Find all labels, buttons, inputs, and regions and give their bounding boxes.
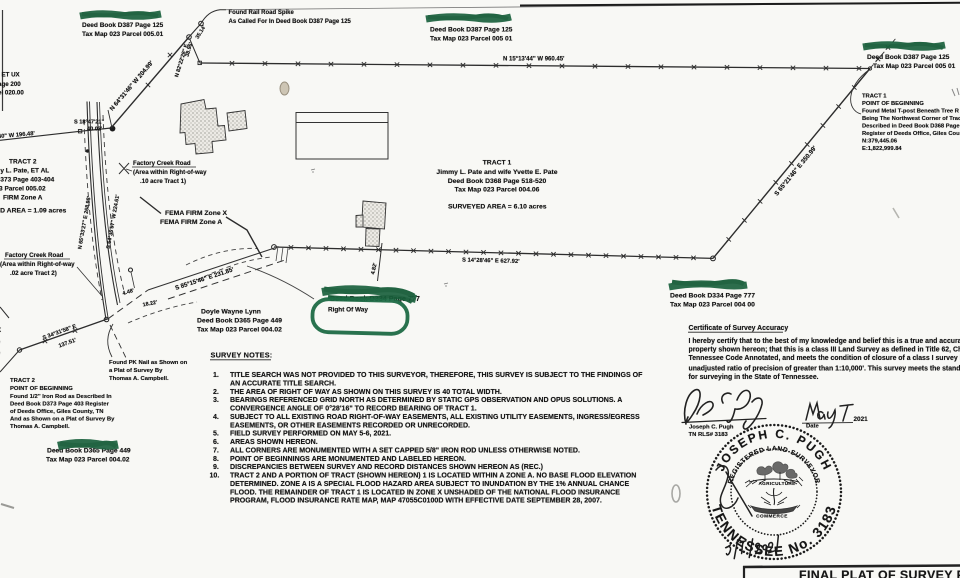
svg-text:N 15°13'44" W 960.45': N 15°13'44" W 960.45' [503, 57, 565, 63]
svg-text:Found Metal T-post Beneath Tre: Found Metal T-post Beneath Tree R [862, 109, 960, 115]
svg-text:2021: 2021 [854, 416, 869, 423]
svg-text:Tax Map 023 Parcel 004.02: Tax Map 023 Parcel 004.02 [197, 327, 282, 334]
svg-text:VEYED AREA = 1.09 acres: VEYED AREA = 1.09 acres [0, 208, 67, 215]
svg-text:7.: 7. [213, 447, 219, 454]
svg-text:40.03': 40.03' [87, 127, 103, 133]
svg-text:AREAS SHOWN HEREON.: AREAS SHOWN HEREON. [230, 439, 318, 446]
svg-text:BEARINGS REFERENCED GRID NORTH: BEARINGS REFERENCED GRID NORTH AS DETERM… [230, 397, 622, 404]
svg-text:(Area within Right-of-way: (Area within Right-of-way [133, 169, 207, 176]
svg-text:N:379,445.06: N:379,445.06 [862, 139, 898, 145]
svg-text:8.: 8. [213, 456, 219, 463]
svg-text:Tax Map 023 Parcel 005 01: Tax Map 023 Parcel 005 01 [430, 36, 513, 43]
svg-text:Certificate of Survey Accuracy: Certificate of Survey Accuracy [689, 325, 789, 332]
svg-text:property shown hereon; that th: property shown hereon; that this is a cl… [689, 347, 960, 354]
svg-text:Tax Map 023 Parcel 004 00: Tax Map 023 Parcel 004 00 [670, 302, 755, 309]
svg-text:Register of Deeds Office, Gile: Register of Deeds Office, Giles Cou [862, 131, 960, 137]
svg-text:AGRICULTURE: AGRICULTURE [758, 481, 795, 486]
svg-text:4.: 4. [213, 414, 219, 421]
svg-text:Jimmy L. Pate and wife Yvette: Jimmy L. Pate and wife Yvette E. Pate [436, 169, 557, 176]
svg-text:Deed Book D368 Page 518-520: Deed Book D368 Page 518-520 [448, 178, 547, 185]
svg-text:3.: 3. [213, 397, 219, 404]
svg-text:TRACT 2: TRACT 2 [9, 159, 37, 166]
svg-text:FINAL PLAT OF SURVEY FOR: FINAL PLAT OF SURVEY FOR [799, 568, 960, 578]
svg-text:TRACT 2 AND A PORTION OF TRACT: TRACT 2 AND A PORTION OF TRACT (SHOWN HE… [230, 473, 636, 480]
svg-text:1.: 1. [213, 372, 219, 379]
svg-text:FEMA FIRM Zone X: FEMA FIRM Zone X [165, 210, 228, 217]
svg-text:PROGRAM, FLOOD INSURANCE RATE: PROGRAM, FLOOD INSURANCE RATE MAP, MAP 4… [230, 498, 602, 505]
svg-text:I hereby certify that to the b: I hereby certify that to the best of my … [689, 338, 960, 345]
svg-text:Joseph C. Pugh: Joseph C. Pugh [689, 425, 734, 431]
svg-text:Factory Creek Road: Factory Creek Road [133, 160, 191, 167]
svg-text:Described in Deed Book D368 Pa: Described in Deed Book D368 Page [862, 124, 960, 130]
svg-text:Found PK Nail as Shown on: Found PK Nail as Shown on [109, 360, 188, 366]
svg-text:Right Of Way: Right Of Way [328, 307, 368, 314]
svg-text:As Called For In Deed Book D38: As Called For In Deed Book D387 Page 125 [229, 19, 352, 25]
svg-text:Map 023 Parcel 005.02: Map 023 Parcel 005.02 [0, 186, 46, 193]
svg-text:immy L. Pate, ET AL: immy L. Pate, ET AL [0, 168, 49, 175]
svg-text:Tax Map 023 Parcel 004.06: Tax Map 023 Parcel 004.06 [455, 187, 540, 194]
svg-text:SURVEY NOTES:: SURVEY NOTES: [211, 351, 273, 360]
svg-text:EASEMENTS, OR OTHER EASEMENTS: EASEMENTS, OR OTHER EASEMENTS RECORDED O… [230, 422, 470, 429]
svg-text:FEMA FIRM Zone A: FEMA FIRM Zone A [160, 219, 222, 226]
svg-text:TRACT 1: TRACT 1 [862, 94, 887, 100]
svg-text:SURVEYED AREA = 6.10 acres: SURVEYED AREA = 6.10 acres [448, 204, 547, 211]
svg-text:Book D3373 Page 403-404: Book D3373 Page 403-404 [0, 177, 55, 184]
svg-text:FIELD SURVEY PERFORMED ON MAY: FIELD SURVEY PERFORMED ON MAY 5-6, 2021. [230, 431, 391, 438]
svg-text:9.: 9. [213, 464, 219, 471]
svg-text:.10 acre Tract 1): .10 acre Tract 1) [140, 178, 186, 185]
svg-text:Deed Book D334 Page 777: Deed Book D334 Page 777 [670, 293, 755, 300]
svg-text:POINT OF BEGINNING: POINT OF BEGINNING [862, 101, 924, 107]
svg-text:Thomas A. Campbell.: Thomas A. Campbell. [109, 376, 169, 382]
svg-text:DISCREPANCIES BETWEEN SURVEY A: DISCREPANCIES BETWEEN SURVEY AND RECORD … [230, 464, 543, 471]
svg-text:Date: Date [806, 424, 819, 430]
svg-text:AN ACCURATE TITLE SEARCH.: AN ACCURATE TITLE SEARCH. [230, 380, 336, 387]
svg-text:Deed Book D387 Page 125: Deed Book D387 Page 125 [430, 27, 513, 34]
svg-text:S 18°47'21": S 18°47'21" [74, 120, 105, 126]
svg-text:FLOOD. THE REMAINDER OF TRACT: FLOOD. THE REMAINDER OF TRACT 1 IS LOCAT… [230, 489, 620, 496]
svg-text:TRACT 2: TRACT 2 [10, 378, 36, 384]
svg-text:a Plat of Survey By: a Plat of Survey By [109, 368, 163, 374]
svg-text:Deed Book D373 Page 403 Regist: Deed Book D373 Page 403 Register [10, 402, 110, 408]
svg-text:POINT OF BEGINNING: POINT OF BEGINNING [10, 386, 73, 392]
svg-text:Found 1/2" Iron Rod as Describ: Found 1/2" Iron Rod as Described In [10, 394, 112, 400]
svg-text:.02 acre Tract 2): .02 acre Tract 2) [10, 270, 57, 277]
svg-text:CONVERGENCE ANGLE OF 0°28'16": CONVERGENCE ANGLE OF 0°28'16" TO RECORD … [230, 405, 477, 413]
svg-text:unadjusted ratio of precision: unadjusted ratio of precision of greater… [689, 366, 960, 373]
svg-text:TRACT 1: TRACT 1 [483, 160, 512, 167]
svg-text:Tax Map 023 Parcel 005.01: Tax Map 023 Parcel 005.01 [82, 31, 164, 38]
svg-text:Tax Map 023 Parcel 005 01: Tax Map 023 Parcel 005 01 [873, 63, 956, 70]
svg-text:el 020.00: el 020.00 [0, 90, 24, 97]
svg-text:X: X [0, 328, 1, 334]
svg-text:And as Shown on a Plat of Surv: And as Shown on a Plat of Survey By [10, 417, 115, 423]
svg-text:ALL CORNERS ARE MONUMENTED WIT: ALL CORNERS ARE MONUMENTED WITH A SET CA… [230, 447, 580, 454]
svg-text:10.: 10. [210, 473, 220, 480]
svg-text:Deed Book D387 Page 125: Deed Book D387 Page 125 [867, 54, 950, 61]
svg-text:Deed Book D387 Page 125: Deed Book D387 Page 125 [82, 22, 164, 29]
svg-text:for surveying in the State of: for surveying in the State of Tennessee. [689, 374, 819, 381]
svg-text:FIRM Zone A: FIRM Zone A [3, 195, 43, 202]
svg-text:age 200: age 200 [0, 81, 21, 88]
svg-text:DETERMINED. ZONE A IS A SPECIA: DETERMINED. ZONE A IS A SPECIAL FLOOD HA… [230, 481, 630, 488]
svg-text:SUBJECT TO ALL EXISTING ROAD R: SUBJECT TO ALL EXISTING ROAD RIGHT-OF-WA… [230, 414, 640, 421]
svg-text:Being The Northwest Corner of: Being The Northwest Corner of Trac [862, 116, 960, 122]
svg-text:Thomas A. Campbell.: Thomas A. Campbell. [10, 424, 70, 430]
svg-text:COMMERCE: COMMERCE [756, 514, 788, 519]
svg-text:of Deeds Office, Giles County,: of Deeds Office, Giles County, TN [10, 409, 104, 415]
svg-text:Doyle Wayne Lynn: Doyle Wayne Lynn [201, 309, 261, 316]
svg-text:(Area within Right-of-way: (Area within Right-of-way [0, 261, 75, 268]
svg-text:TN RLS# 3183: TN RLS# 3183 [689, 432, 729, 438]
svg-text:TITLE SEARCH WAS NOT PROVIDED: TITLE SEARCH WAS NOT PROVIDED TO THIS SU… [230, 372, 643, 379]
svg-text:Factory Creek Road: Factory Creek Road [5, 252, 64, 259]
svg-text:6.: 6. [213, 439, 219, 446]
svg-text:Deed Book D365 Page 449: Deed Book D365 Page 449 [197, 318, 282, 325]
svg-text:Tennessee Code Annotated, and: Tennessee Code Annotated, and meets the … [689, 355, 960, 362]
svg-text:2.: 2. [213, 389, 219, 396]
svg-text:E:1,822,999.84: E:1,822,999.84 [862, 146, 902, 152]
svg-text:POINT OF BEGINNINGS ARE MONUME: POINT OF BEGINNINGS ARE MONUMENTED AND L… [230, 456, 466, 463]
svg-text:, ET UX: , ET UX [0, 72, 21, 79]
svg-text:Tax Map 023 Parcel 004.02: Tax Map 023 Parcel 004.02 [46, 457, 130, 464]
svg-text:Found Rail Road Spike: Found Rail Road Spike [229, 10, 295, 16]
svg-text:5.: 5. [213, 431, 219, 438]
svg-text:THE AREA OF RIGHT OF WAY AS SH: THE AREA OF RIGHT OF WAY AS SHOWN ON THI… [230, 389, 502, 396]
